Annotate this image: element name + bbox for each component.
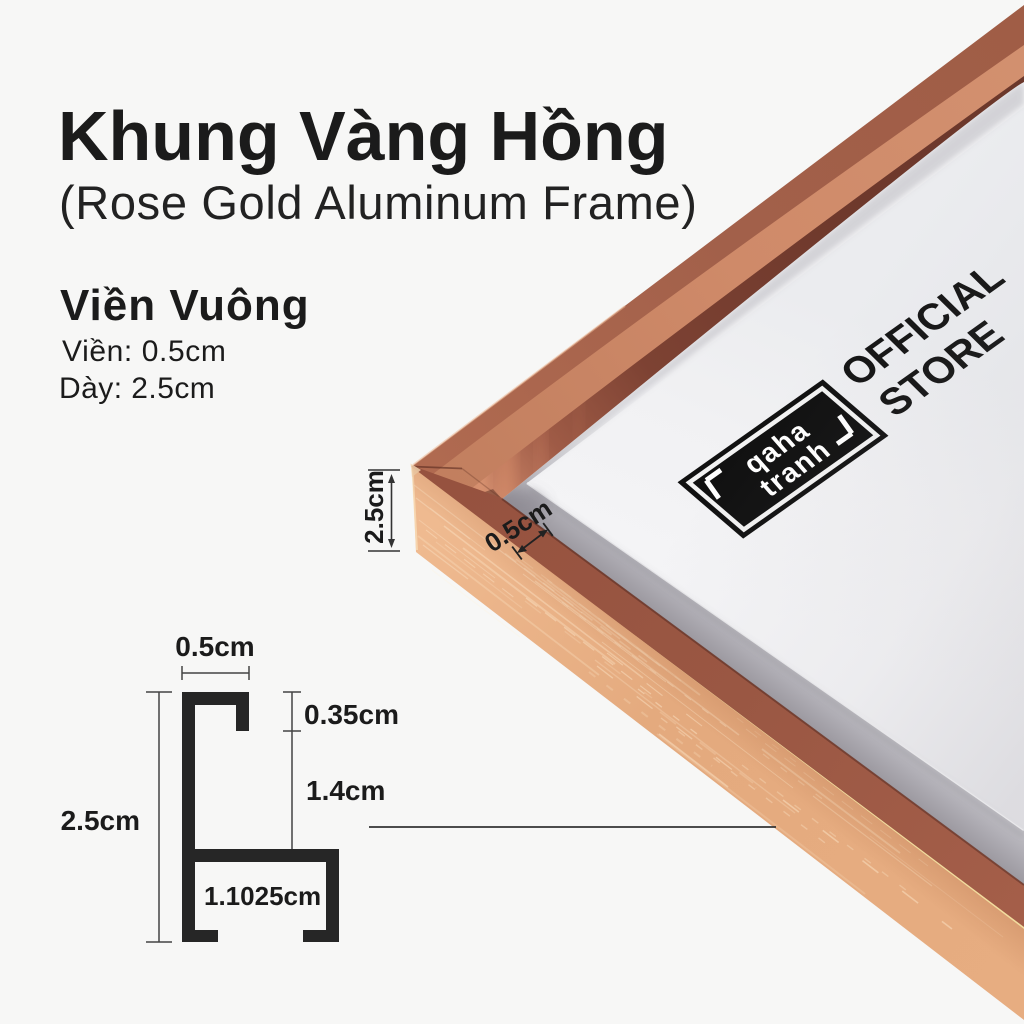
svg-text:Viền Vuông: Viền Vuông bbox=[60, 281, 310, 330]
svg-text:Viền: 0.5cm: Viền: 0.5cm bbox=[62, 335, 226, 368]
svg-text:(Rose Gold Aluminum Frame): (Rose Gold Aluminum Frame) bbox=[59, 176, 698, 229]
svg-text:2.5cm: 2.5cm bbox=[359, 470, 389, 544]
svg-text:1.4cm: 1.4cm bbox=[306, 775, 385, 806]
svg-text:0.5cm: 0.5cm bbox=[175, 631, 254, 662]
svg-text:Dày: 2.5cm: Dày: 2.5cm bbox=[59, 372, 215, 405]
svg-text:0.35cm: 0.35cm bbox=[304, 699, 399, 730]
svg-text:1.1025cm: 1.1025cm bbox=[204, 881, 321, 911]
svg-text:2.5cm: 2.5cm bbox=[61, 805, 140, 836]
svg-text:Khung Vàng Hồng: Khung Vàng Hồng bbox=[58, 97, 668, 175]
